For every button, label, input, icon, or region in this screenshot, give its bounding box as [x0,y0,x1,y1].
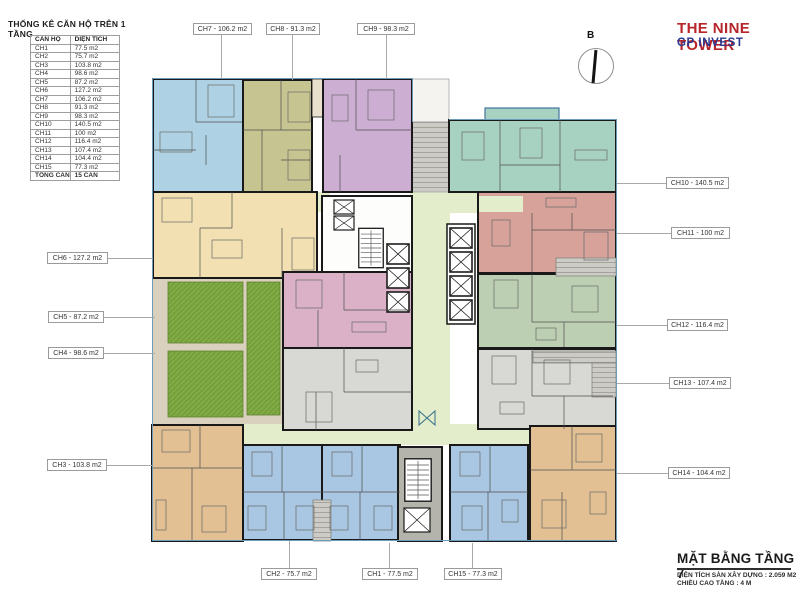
title-underline [677,568,791,570]
table-row: CH11100 m2 [31,129,120,138]
apartment-ch9 [323,79,412,192]
table-row: CH6127.2 m2 [31,87,120,96]
corridor-notch [479,196,523,212]
apartment-ch3 [152,425,243,541]
stair-icon [405,459,431,501]
table-cell: CH15 [31,163,71,172]
label-line-ch7 [221,35,222,79]
table-cell: CH8 [31,104,71,113]
floor-height-spec: CHIỀU CAO TẦNG : 4 M [677,580,751,587]
table-cell: CH1 [31,44,71,53]
stair-icon [359,228,384,267]
table-cell: CH2 [31,53,71,62]
table-cell: 77.3 m2 [70,163,119,172]
table-cell: 103.8 m2 [70,61,119,70]
label-ch14: CH14 - 104.4 m2 [668,467,730,479]
apartment-ch6 [153,192,317,278]
label-ch4: CH4 - 98.6 m2 [48,347,104,359]
stats-table: CĂN HỘ DIỆN TÍCH CH177.5 m2CH275.7 m2CH3… [30,35,120,181]
table-cell: CH10 [31,121,71,130]
label-ch1: CH1 - 77.5 m2 [362,568,418,580]
label-line-ch3 [107,465,152,466]
table-row: CH1577.3 m2 [31,163,120,172]
table-header-row: CĂN HỘ DIỆN TÍCH [31,36,120,45]
table-cell: 127.2 m2 [70,87,119,96]
table-cell: CH9 [31,112,71,121]
label-line-ch4 [104,353,155,354]
label-line-ch9 [386,35,387,79]
table-cell: CH14 [31,155,71,164]
label-ch5: CH5 - 87.2 m2 [48,311,104,323]
table-cell: CH5 [31,78,71,87]
table-cell: CH13 [31,146,71,155]
table-row: CH587.2 m2 [31,78,120,87]
table-cell: 104.4 m2 [70,155,119,164]
floor-area-spec: DIỆN TÍCH SÀN XÂY DỰNG : 2.059 M2 [677,572,796,579]
table-row: CH498.6 m2 [31,70,120,79]
table-total-label: TỔNG CĂN [31,172,71,181]
table-cell: CH4 [31,70,71,79]
label-ch12: CH12 - 116.4 m2 [667,319,728,331]
apartment-ch10 [449,120,616,192]
table-header-unit: CĂN HỘ [31,36,71,45]
table-cell: 98.3 m2 [70,112,119,121]
label-line-ch14 [617,473,668,474]
label-line-ch11 [617,233,671,234]
table-row: CH177.5 m2 [31,44,120,53]
label-ch13: CH13 - 107.4 m2 [669,377,731,389]
table-header-area: DIỆN TÍCH [70,36,119,45]
floor-plan-svg [148,70,620,548]
label-line-ch13 [617,383,669,384]
table-cell: CH6 [31,87,71,96]
table-cell: 98.6 m2 [70,70,119,79]
label-ch15: CH15 - 77.3 m2 [444,568,502,580]
label-ch6: CH6 - 127.2 m2 [47,252,108,264]
table-row: CH7106.2 m2 [31,95,120,104]
label-line-ch10 [617,183,666,184]
table-total-value: 15 CĂN [70,172,119,181]
label-line-ch5 [104,317,155,318]
label-line-ch2 [289,541,290,568]
stats-table-body: CH177.5 m2CH275.7 m2CH3103.8 m2CH498.6 m… [31,44,120,172]
service-strips [412,79,449,192]
table-cell: 87.2 m2 [70,78,119,87]
label-line-ch8 [292,35,293,80]
table-row: CH10140.5 m2 [31,121,120,130]
table-cell: 106.2 m2 [70,95,119,104]
table-cell: CH11 [31,129,71,138]
table-row: CH891.3 m2 [31,104,120,113]
table-row: CH275.7 m2 [31,53,120,62]
label-line-ch6 [108,258,153,259]
table-total-row: TỔNG CĂN 15 CĂN [31,172,120,181]
table-row: CH12116.4 m2 [31,138,120,147]
label-line-ch15 [472,543,473,568]
brand-subtitle: GP INVEST [677,37,744,49]
label-ch10: CH10 - 140.5 m2 [666,177,729,189]
apartment-ch1 [322,445,400,540]
label-ch9: CH9 - 98.3 m2 [357,23,415,35]
label-line-ch1 [389,543,390,568]
table-cell: 140.5 m2 [70,121,119,130]
label-ch2: CH2 - 75.7 m2 [261,568,317,580]
table-cell: 100 m2 [70,129,119,138]
label-ch11: CH11 - 100 m2 [671,227,730,239]
table-cell: 116.4 m2 [70,138,119,147]
table-row: CH998.3 m2 [31,112,120,121]
table-cell: 77.5 m2 [70,44,119,53]
label-ch7: CH7 - 106.2 m2 [193,23,252,35]
table-cell: CH3 [31,61,71,70]
compass-north-label: B [587,30,594,41]
table-row: CH14104.4 m2 [31,155,120,164]
apartment-ch8 [243,80,312,192]
apartment-ch14 [530,426,616,541]
apartment-ch7 [153,79,243,192]
label-ch8: CH8 - 91.3 m2 [266,23,320,35]
table-cell: 75.7 m2 [70,53,119,62]
table-row: CH13107.4 m2 [31,146,120,155]
table-row: CH3103.8 m2 [31,61,120,70]
apartment-ch4 [283,348,412,430]
table-cell: 107.4 m2 [70,146,119,155]
table-cell: CH7 [31,95,71,104]
apartment-ch2 [243,445,322,540]
apartment-ch12 [478,274,616,348]
table-cell: 91.3 m2 [70,104,119,113]
label-ch3: CH3 - 103.8 m2 [47,459,107,471]
table-cell: CH12 [31,138,71,147]
label-line-ch12 [617,325,667,326]
